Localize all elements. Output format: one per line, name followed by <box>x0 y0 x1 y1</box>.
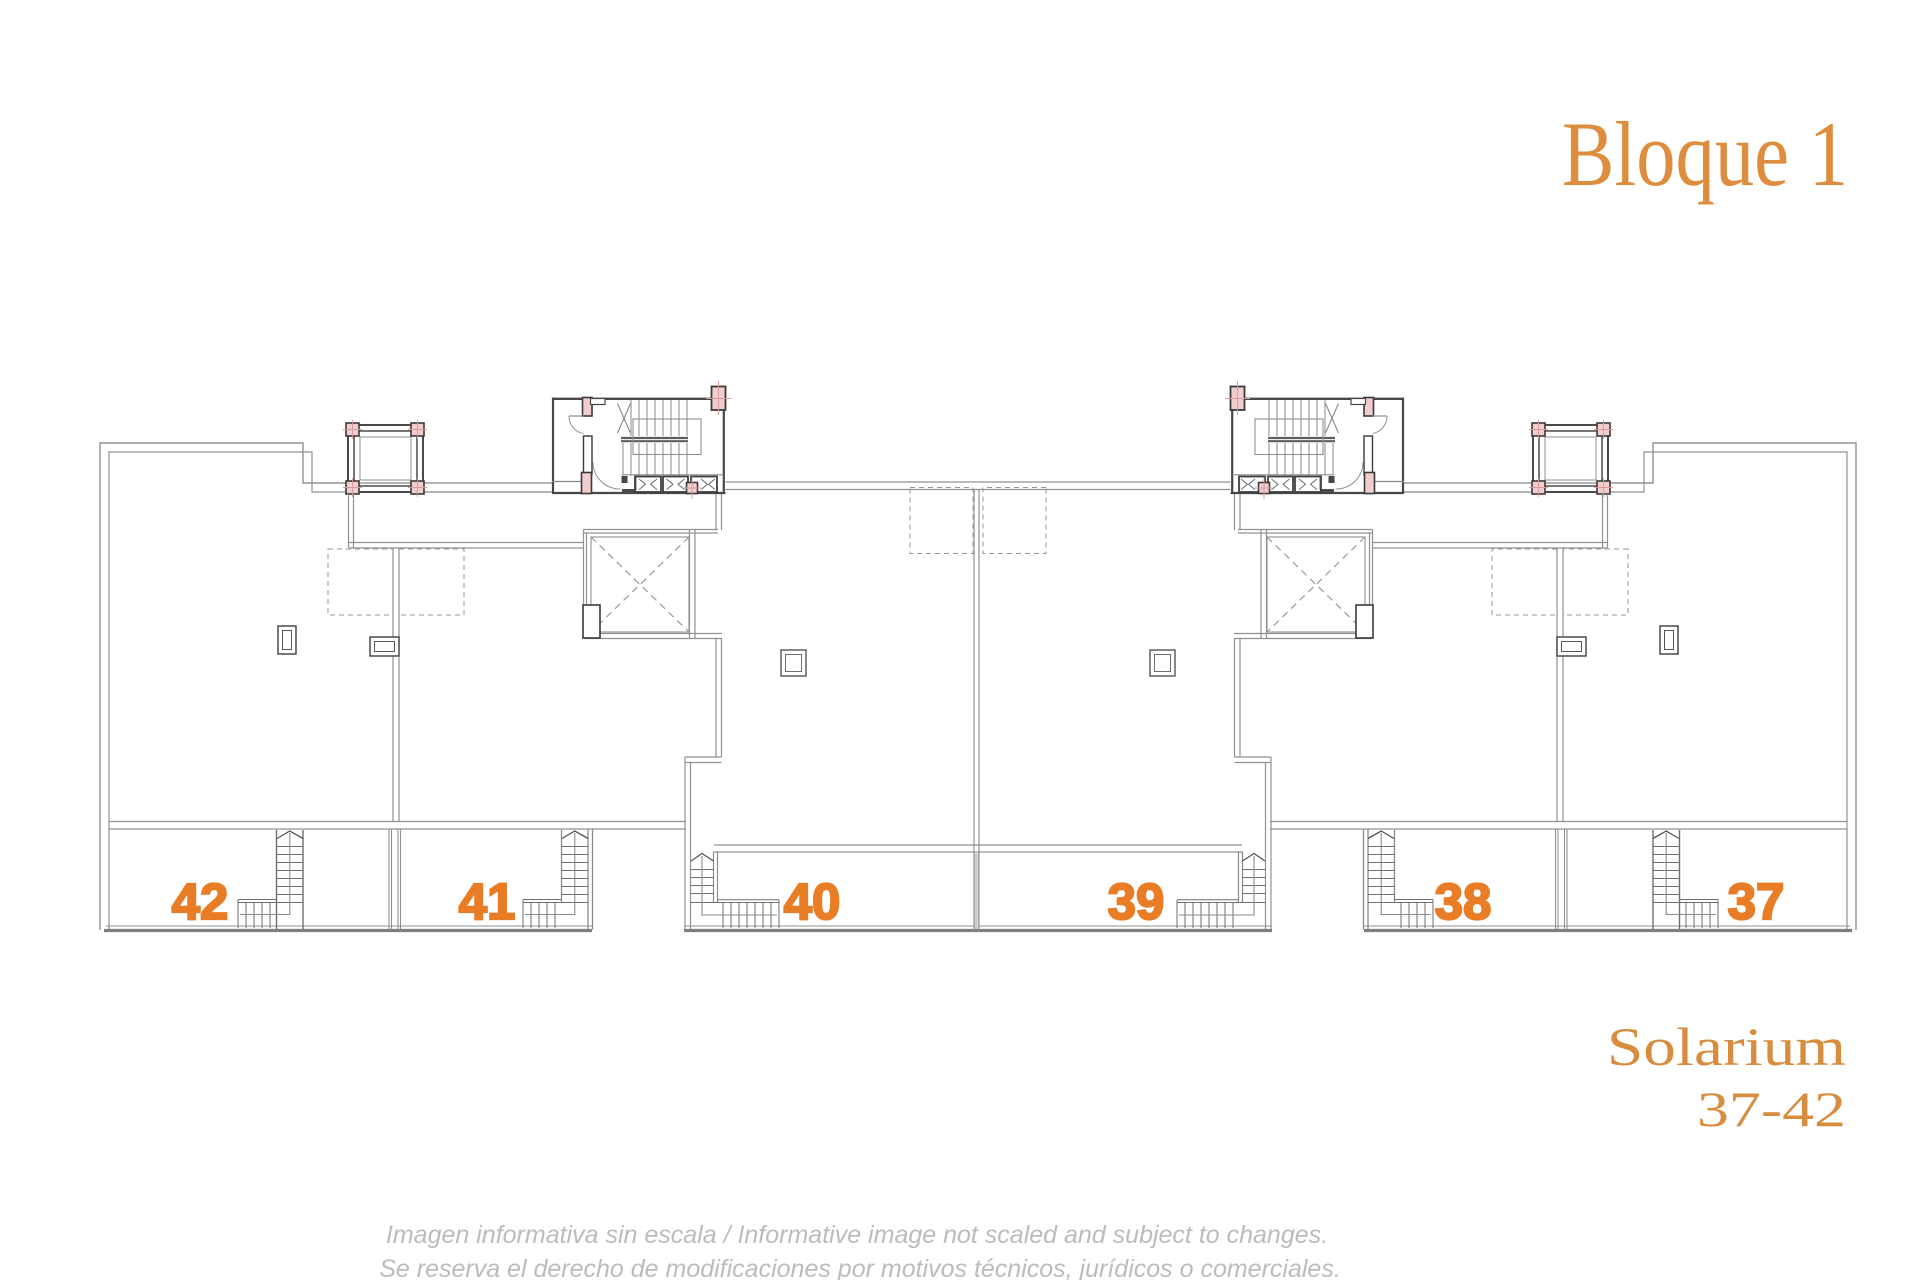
svg-text:Se reserva el derecho de modif: Se reserva el derecho de modificaciones … <box>379 1255 1341 1280</box>
svg-text:Bloque 1: Bloque 1 <box>1562 103 1848 205</box>
svg-text:37: 37 <box>1728 873 1785 930</box>
svg-text:40: 40 <box>784 873 841 930</box>
svg-text:Imagen informativa sin escala: Imagen informativa sin escala / Informat… <box>386 1221 1328 1249</box>
svg-text:38: 38 <box>1435 873 1492 930</box>
svg-text:41: 41 <box>459 873 516 930</box>
svg-text:Solarium: Solarium <box>1607 1017 1846 1077</box>
svg-text:42: 42 <box>172 873 229 930</box>
svg-text:39: 39 <box>1108 873 1165 930</box>
svg-text:37-42: 37-42 <box>1697 1081 1846 1137</box>
